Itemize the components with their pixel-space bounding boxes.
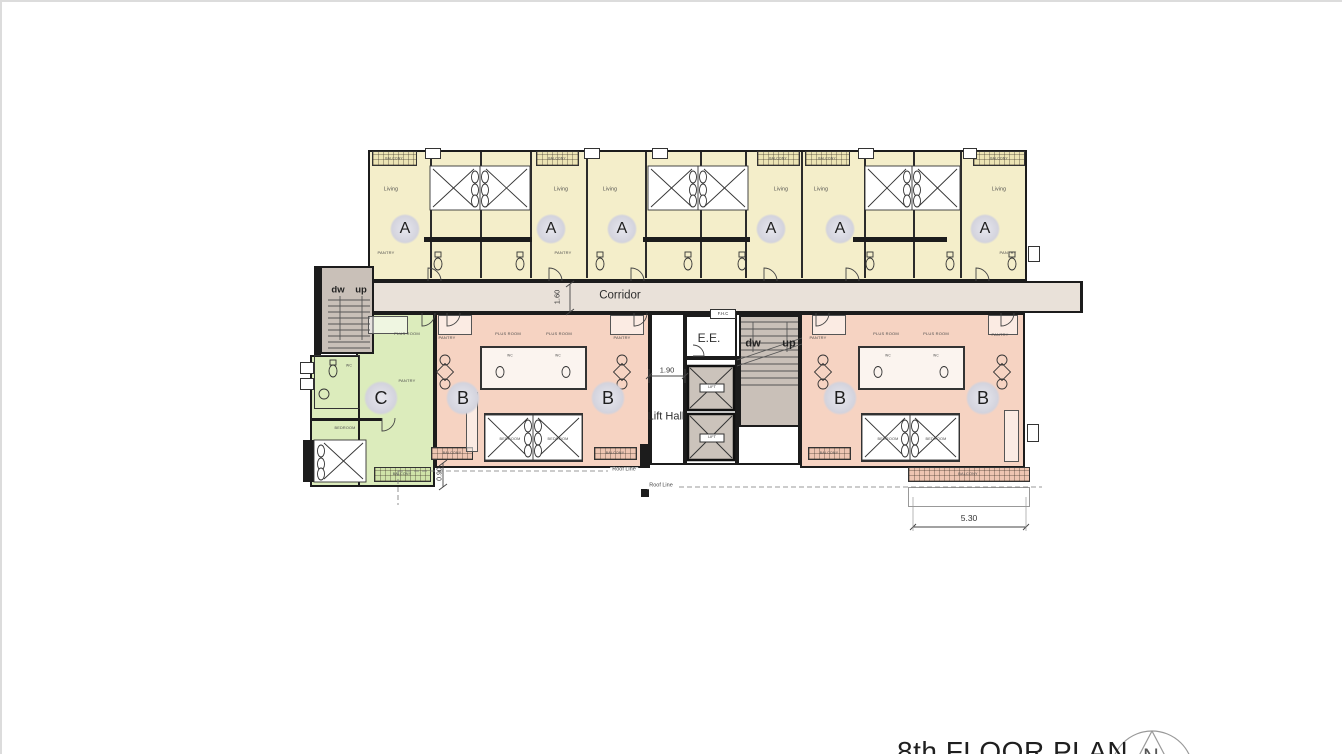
- room-label-living: Living: [814, 188, 828, 193]
- room-label-pantry: PANTRY: [398, 379, 415, 383]
- roof-lines: [398, 471, 1042, 505]
- lift-label: LIFT: [708, 386, 716, 390]
- stair-dw-label: dw: [745, 339, 760, 350]
- unit-label-a: A: [390, 214, 420, 244]
- floor-plan-page: A A A A A A B B B B C Corridor Lift Hall…: [0, 0, 1342, 754]
- room-label-balcony: BALCONY: [443, 452, 462, 456]
- room-label-bedroom: BEDROOM: [547, 438, 568, 442]
- north-label: N: [1143, 746, 1159, 754]
- room-label-balcony: BALCONY: [818, 157, 836, 160]
- unit-label-a: A: [756, 214, 786, 244]
- room-label-living: Living: [554, 188, 568, 193]
- room-label-pantry: PANTRY: [377, 251, 394, 255]
- unit-letter: B: [834, 388, 846, 409]
- bed-double: [648, 166, 748, 210]
- unit-label-b: B: [446, 381, 480, 415]
- corridor-label: Corridor: [599, 290, 641, 302]
- unit-label-b: B: [823, 381, 857, 415]
- stair-up-label: up: [782, 339, 795, 350]
- room-label-balcony: BALCONY: [820, 452, 839, 456]
- unit-letter: B: [602, 388, 614, 409]
- unit-letter: A: [766, 220, 777, 238]
- unit-letter: A: [546, 220, 557, 238]
- unit-letter: A: [835, 220, 846, 238]
- roof-line-label: Roof Line: [647, 483, 675, 489]
- room-label-bedroom: BEDROOM: [334, 427, 355, 431]
- dim-lift-hall: 1.90: [660, 366, 675, 374]
- room-label-living: Living: [384, 188, 398, 193]
- stair-up-label: up: [355, 285, 367, 295]
- lift-label: LIFT: [708, 436, 716, 440]
- room-label-balcony: BALCONY: [606, 452, 625, 456]
- unit-letter: C: [375, 388, 388, 409]
- plan-linework: [0, 0, 1342, 754]
- room-label-wc: WC: [885, 354, 891, 357]
- west-stair-steps: [328, 296, 370, 348]
- unit-letter: A: [617, 220, 628, 238]
- room-label-bedroom: BEDROOM: [499, 438, 520, 442]
- room-label-living: Living: [603, 188, 617, 193]
- room-label-wc: WC: [507, 354, 513, 357]
- room-label-bedroom: BEDROOM: [925, 438, 946, 442]
- room-label-pantry: PANTRY: [613, 336, 630, 340]
- room-label-wc: WC: [933, 354, 939, 357]
- dim-left-balcony: 0.90: [437, 467, 444, 481]
- room-label-living: Living: [774, 188, 788, 193]
- room-label-wc: WC: [346, 364, 352, 368]
- unit-letter: B: [977, 388, 989, 409]
- roof-line-label: Roof Line: [610, 467, 638, 473]
- unit-label-c: C: [364, 381, 398, 415]
- room-label-plus-room: PLUS ROOM: [495, 332, 521, 336]
- unit-label-a: A: [607, 214, 637, 244]
- room-label-wc: WC: [555, 354, 561, 357]
- unit-letter: A: [400, 220, 411, 238]
- room-label-balcony: BALCONY: [385, 157, 403, 160]
- unit-label-a: A: [825, 214, 855, 244]
- fhc-label: F.H.C: [718, 312, 728, 316]
- dim-corridor: 1.60: [553, 290, 561, 305]
- unit-label-b: B: [966, 381, 1000, 415]
- room-label-bedroom: BEDROOM: [877, 438, 898, 442]
- room-label-pantry: PANTRY: [809, 336, 826, 340]
- room-label-balcony: BALCONY: [393, 473, 412, 477]
- bed-double: [865, 166, 960, 210]
- toilet-row: [434, 252, 1016, 270]
- room-label-plus-room: PLUS ROOM: [923, 332, 949, 336]
- unit-letter: B: [457, 388, 469, 409]
- room-label-pantry: PANTRY: [999, 251, 1016, 255]
- dim-right-balcony: 5.30: [961, 514, 978, 523]
- core-stair-steps: [737, 322, 802, 385]
- unit-label-b: B: [591, 381, 625, 415]
- room-label-balcony: BALCONY: [990, 157, 1008, 160]
- sheet-title: 8th FLOOR PLAN: [897, 736, 1128, 754]
- room-label-balcony: BALCONY: [548, 157, 566, 160]
- unit-label-a: A: [536, 214, 566, 244]
- bed-single: [314, 440, 366, 482]
- unit-label-a: A: [970, 214, 1000, 244]
- unit-letter: A: [980, 220, 991, 238]
- room-label-plus-room: PLUS ROOM: [394, 332, 420, 336]
- lift-hall-label: Lift Hall: [648, 412, 685, 423]
- lift-cars: [688, 366, 734, 460]
- room-label-balcony: BALCONY: [769, 157, 787, 160]
- room-label-living: Living: [992, 188, 1006, 193]
- ee-label: E.E.: [698, 332, 721, 344]
- bed-double: [430, 166, 530, 210]
- room-label-pantry: PANTRY: [438, 336, 455, 340]
- room-label-pantry: PANTRY: [991, 333, 1008, 337]
- room-label-plus-room: PLUS ROOM: [546, 332, 572, 336]
- stair-dw-label: dw: [331, 285, 344, 295]
- room-label-balcony: BALCONY: [958, 473, 978, 477]
- room-label-pantry: PANTRY: [554, 251, 571, 255]
- room-label-plus-room: PLUS ROOM: [873, 332, 899, 336]
